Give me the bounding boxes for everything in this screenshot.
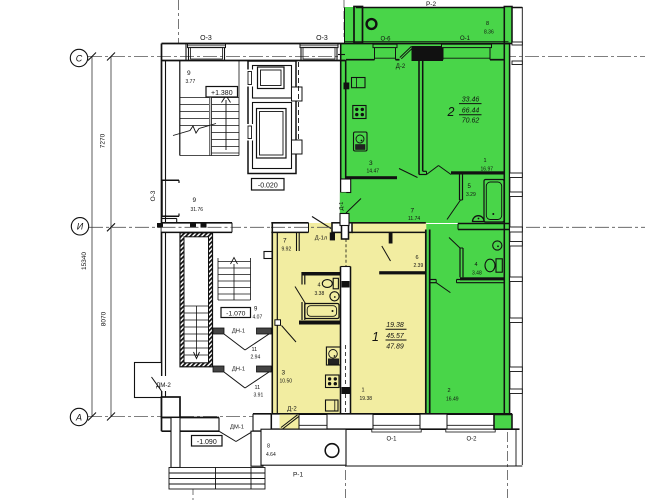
svg-text:2: 2 — [448, 388, 451, 394]
svg-text:Д-2: Д-2 — [287, 407, 297, 413]
svg-text:4: 4 — [318, 283, 321, 289]
svg-text:С: С — [76, 53, 83, 63]
svg-text:7: 7 — [411, 208, 415, 215]
svg-text:3.29: 3.29 — [466, 192, 476, 198]
svg-text:Р-2: Р-2 — [426, 1, 437, 8]
svg-text:ДН-1: ДН-1 — [232, 367, 245, 373]
svg-text:9.92: 9.92 — [282, 247, 292, 253]
svg-text:2: 2 — [447, 105, 455, 119]
svg-text:3.77: 3.77 — [186, 79, 196, 85]
svg-text:8: 8 — [267, 444, 270, 450]
svg-text:-0.020: -0.020 — [258, 183, 278, 190]
svg-text:3.48: 3.48 — [472, 271, 482, 277]
svg-text:66.44: 66.44 — [462, 108, 480, 115]
svg-text:1: 1 — [372, 330, 379, 344]
svg-text:33.46: 33.46 — [462, 97, 480, 104]
svg-text:6: 6 — [416, 255, 419, 261]
svg-text:4.07: 4.07 — [253, 315, 263, 321]
svg-text:О-1: О-1 — [386, 437, 397, 443]
svg-text:14.47: 14.47 — [367, 169, 380, 175]
svg-text:9: 9 — [193, 197, 197, 204]
svg-text:19.38: 19.38 — [360, 396, 373, 402]
svg-text:8070: 8070 — [101, 311, 108, 326]
svg-text:О-6: О-6 — [380, 37, 391, 43]
svg-text:О-3: О-3 — [150, 190, 157, 201]
svg-text:3.38: 3.38 — [315, 291, 325, 297]
svg-text:4.64: 4.64 — [266, 452, 276, 458]
svg-text:Р-1: Р-1 — [293, 472, 304, 479]
svg-text:11.74: 11.74 — [408, 216, 420, 222]
svg-text:ДМ-2: ДМ-2 — [156, 382, 171, 389]
svg-text:3.91: 3.91 — [254, 393, 264, 399]
svg-text:Д-1: Д-1 — [339, 202, 345, 211]
svg-text:31.76: 31.76 — [191, 207, 204, 213]
svg-text:-1.070: -1.070 — [226, 311, 245, 318]
svg-text:О-2: О-2 — [466, 437, 477, 443]
svg-text:8.36: 8.36 — [484, 30, 494, 36]
svg-text:О-1: О-1 — [460, 36, 471, 42]
svg-text:1: 1 — [362, 388, 365, 394]
svg-text:О-3: О-3 — [200, 35, 212, 42]
svg-text:-1.090: -1.090 — [197, 439, 217, 446]
svg-text:9: 9 — [187, 70, 191, 77]
svg-text:О-3: О-3 — [316, 35, 328, 42]
svg-text:И: И — [77, 222, 84, 232]
svg-text:4: 4 — [475, 262, 478, 268]
svg-text:3: 3 — [282, 370, 286, 377]
svg-text:8: 8 — [486, 21, 489, 27]
svg-text:11: 11 — [255, 385, 261, 391]
svg-text:70.62: 70.62 — [462, 118, 480, 125]
svg-text:47.89: 47.89 — [386, 344, 404, 351]
svg-text:1: 1 — [484, 158, 487, 164]
svg-text:Д-2: Д-2 — [396, 64, 406, 70]
svg-text:Д-1л: Д-1л — [315, 236, 327, 242]
svg-text:11: 11 — [252, 347, 258, 353]
svg-text:7: 7 — [283, 238, 287, 245]
svg-text:+1.380: +1.380 — [211, 90, 233, 97]
svg-text:19.38: 19.38 — [386, 322, 404, 329]
svg-text:2.94: 2.94 — [251, 355, 261, 361]
svg-text:А: А — [75, 412, 82, 422]
svg-text:7270: 7270 — [100, 133, 107, 148]
svg-text:2.39: 2.39 — [414, 263, 424, 269]
svg-text:15340: 15340 — [81, 252, 88, 270]
svg-text:10.50: 10.50 — [280, 379, 293, 385]
svg-text:45.57: 45.57 — [386, 333, 405, 340]
svg-text:ДН-1: ДН-1 — [232, 329, 245, 335]
svg-text:3: 3 — [369, 160, 373, 167]
svg-text:16.49: 16.49 — [446, 397, 459, 403]
svg-text:ДМ-1: ДМ-1 — [230, 425, 244, 431]
